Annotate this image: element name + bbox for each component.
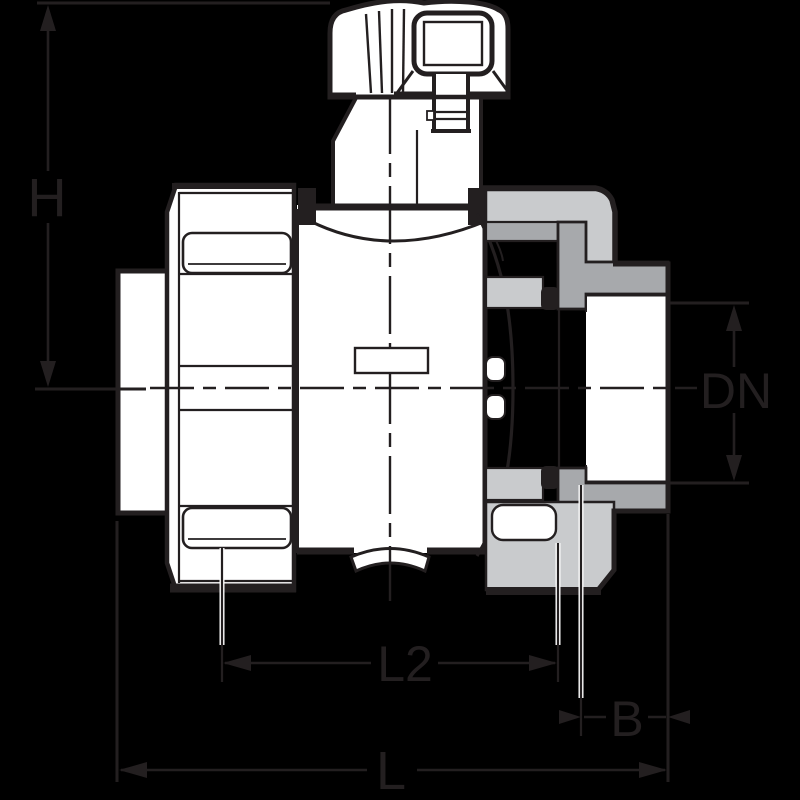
arrow-right-icon: [559, 710, 581, 724]
arrow-down-icon: [726, 455, 742, 481]
dimension-label-h: H: [28, 168, 67, 228]
nut-grip-slot: [492, 505, 556, 540]
valve-body: [297, 94, 513, 571]
technical-drawing-canvas: H DN L2 B: [0, 0, 800, 800]
arrow-left-icon: [223, 655, 251, 671]
dimension-dn: DN: [668, 303, 772, 483]
body-section-notch: [298, 188, 316, 225]
handle-stem: [427, 74, 471, 132]
dimension-b: B: [559, 691, 690, 747]
dimension-label-b: B: [610, 691, 643, 747]
arrow-right-icon: [529, 655, 557, 671]
body-center-plate: [355, 348, 428, 373]
arrow-left-icon: [119, 762, 147, 778]
dimension-l2: L2: [223, 636, 557, 692]
arrow-left-icon: [668, 710, 690, 724]
ball-valve-figure: [118, 1, 697, 601]
arrow-down-icon: [40, 361, 56, 387]
nut-grip-slot: [183, 508, 291, 548]
dimension-label-dn: DN: [700, 363, 772, 419]
o-ring-seal: [541, 287, 559, 310]
left-pipe-stub: [118, 271, 170, 513]
dimension-label-l2: L2: [377, 636, 433, 692]
arrow-right-icon: [639, 762, 667, 778]
o-ring-seal: [541, 466, 559, 489]
nut-grip-slot: [183, 233, 291, 273]
dimension-l: L: [119, 741, 667, 800]
body-section-notch: [468, 188, 486, 225]
arrow-up-icon: [726, 305, 742, 331]
arrow-up-icon: [40, 5, 56, 31]
dimension-label-l: L: [376, 741, 406, 800]
right-union-connector: [483, 188, 668, 591]
